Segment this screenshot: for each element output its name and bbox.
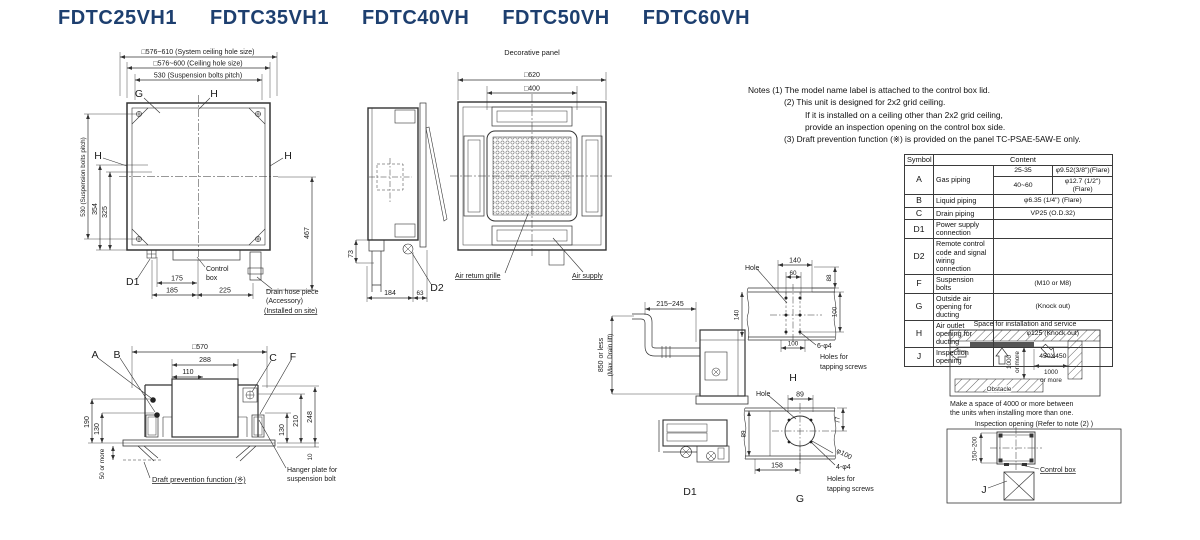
dim-bolt-pitch-vertical: 530 (Suspension bolts pitch) bbox=[80, 137, 87, 216]
dim-158: 158 bbox=[771, 463, 783, 470]
symbol-cell: A bbox=[905, 166, 934, 195]
value-cell: φ9.52(3/8")(Flare) bbox=[1053, 166, 1113, 177]
symbol-h: H bbox=[94, 150, 102, 162]
symbol-cell: H bbox=[905, 321, 934, 348]
dim-140-left: 140 bbox=[734, 309, 741, 320]
dim-100-bottom: 100 bbox=[788, 341, 799, 348]
dim-210: 210 bbox=[293, 415, 300, 427]
drain-hose-label: (Accessory) bbox=[266, 298, 303, 305]
value-cell bbox=[993, 220, 1112, 239]
dim-10: 10 bbox=[307, 453, 314, 461]
draft-prevention-label: Draft prevention function (※) bbox=[152, 475, 246, 484]
screw-label: tapping screws bbox=[827, 486, 874, 493]
dim-bolt-pitch: 530 (Suspension bolts pitch) bbox=[154, 73, 242, 80]
desc-cell: Inspection opening bbox=[934, 348, 994, 367]
value-cell: φ6.35 (1/4") (Flare) bbox=[993, 195, 1112, 208]
hole-pattern-g bbox=[744, 395, 847, 474]
plan-view bbox=[84, 52, 316, 299]
dim-130-left: 130 bbox=[94, 423, 101, 435]
dim-325: 325 bbox=[102, 206, 109, 218]
symbol-cell: F bbox=[905, 274, 934, 293]
dim-ceiling-hole: □576~600 (Ceiling hole size) bbox=[153, 61, 242, 68]
value-cell: 450X450 bbox=[993, 348, 1112, 367]
section-view bbox=[88, 346, 319, 478]
d1-detail-view bbox=[659, 420, 729, 462]
dim-850-or-less: 850 or less bbox=[598, 337, 605, 372]
dim-phi-100: φ100 bbox=[835, 448, 853, 462]
notes-block: Notes (1) The model name label is attach… bbox=[748, 84, 1128, 145]
dim-185: 185 bbox=[166, 288, 178, 295]
range-cell: 25-35 bbox=[993, 166, 1053, 177]
dim-190: 190 bbox=[84, 416, 91, 428]
desc-cell: Remote control code and signal wiring co… bbox=[934, 239, 994, 274]
control-box-label: Control box bbox=[1040, 467, 1076, 474]
dim-1000: 1000 bbox=[1044, 369, 1059, 376]
range-cell: 40~60 bbox=[993, 176, 1053, 194]
dim-50-or-more: 50 or more bbox=[99, 448, 106, 479]
symbol-a: A bbox=[91, 349, 98, 361]
control-box-label: Control bbox=[206, 266, 229, 273]
drain-lift-view bbox=[612, 302, 748, 404]
table-row: A Gas piping 25-35 φ9.52(3/8")(Flare) bbox=[905, 166, 1113, 177]
desc-cell: Gas piping bbox=[934, 166, 994, 195]
drain-hose-label: Drain hose piece bbox=[266, 289, 319, 296]
table-row: C Drain piping VP25 (O.D.32) bbox=[905, 207, 1113, 220]
symbol-d2: D2 bbox=[430, 282, 444, 294]
dim-150-200: 150~200 bbox=[972, 436, 979, 461]
value-cell: φ12.7 (1/2") (Flare) bbox=[1053, 176, 1113, 194]
panel-title: Decorative panel bbox=[504, 48, 560, 57]
dim-77: 77 bbox=[835, 416, 842, 424]
symbol-cell: D1 bbox=[905, 220, 934, 239]
dim-89-left: 89 bbox=[741, 430, 748, 438]
screw-label: Holes for bbox=[827, 476, 856, 483]
dim-73: 73 bbox=[348, 250, 355, 258]
dim-620: □620 bbox=[524, 72, 540, 79]
dim-140-top: 140 bbox=[789, 258, 801, 265]
table-row: H Air outlet opening for ducting φ125 (K… bbox=[905, 321, 1113, 348]
decorative-panel-view bbox=[450, 72, 614, 273]
dim-248: 248 bbox=[307, 411, 314, 423]
desc-cell: Liquid piping bbox=[934, 195, 994, 208]
desc-cell: Outside air opening for ducting bbox=[934, 293, 994, 320]
table-row: D1 Power supply connection bbox=[905, 220, 1113, 239]
symbol-cell: J bbox=[905, 348, 934, 367]
table-row: G Outside air opening for ducting (Knock… bbox=[905, 293, 1113, 320]
side-view-labels: 73 184 63 D2 bbox=[348, 250, 444, 297]
desc-cell: Suspension bolts bbox=[934, 274, 994, 293]
table-header-symbol: Symbol bbox=[905, 155, 934, 166]
desc-cell: Drain piping bbox=[934, 207, 994, 220]
note-line: (2) This unit is designed for 2x2 grid c… bbox=[748, 96, 1128, 108]
dim-60: 60 bbox=[789, 270, 797, 277]
screw-label: tapping screws bbox=[820, 364, 867, 371]
hanger-plate-label: suspension bolt bbox=[287, 476, 336, 483]
dim-175: 175 bbox=[171, 276, 183, 283]
dim-400: □400 bbox=[524, 86, 540, 93]
symbol-d1: D1 bbox=[683, 486, 697, 498]
table-row: B Liquid piping φ6.35 (1/4") (Flare) bbox=[905, 195, 1113, 208]
symbol-d1: D1 bbox=[126, 276, 140, 288]
symbol-h: H bbox=[789, 372, 797, 384]
drawing-sheet: FDTC25VH1 FDTC35VH1 FDTC40VH FDTC50VH FD… bbox=[0, 0, 1200, 540]
control-box-label: box bbox=[206, 275, 218, 282]
obstacle-label: Obstacle bbox=[987, 386, 1012, 393]
dim-100-right: 100 bbox=[832, 306, 839, 317]
symbol-b: B bbox=[113, 349, 120, 361]
symbol-cell: B bbox=[905, 195, 934, 208]
symbol-cell: C bbox=[905, 207, 934, 220]
symbol-g: G bbox=[796, 493, 804, 505]
dim-89-top: 89 bbox=[796, 392, 804, 399]
symbol-j: J bbox=[981, 484, 986, 496]
dim-467: 467 bbox=[304, 227, 311, 239]
dim-63: 63 bbox=[416, 290, 424, 297]
table-row: F Suspension bolts (M10 or M8) bbox=[905, 274, 1113, 293]
symbol-cell: D2 bbox=[905, 239, 934, 274]
air-supply-label: Air supply bbox=[572, 273, 603, 280]
drain-hose-label: (Installed on site) bbox=[264, 308, 317, 315]
value-cell bbox=[993, 239, 1112, 274]
symbol-c: C bbox=[269, 352, 277, 364]
hole-pattern-h-labels: Hole 140 60 88 140 100 100 6-φ4 Holes fo… bbox=[734, 258, 868, 385]
note-line: If it is installed on a ceiling other th… bbox=[748, 109, 1128, 121]
symbol-h: H bbox=[284, 150, 292, 162]
hole-label: Hole bbox=[745, 265, 760, 272]
screw-label: Holes for bbox=[820, 354, 849, 361]
screw-count-label: 6-φ4 bbox=[817, 343, 832, 350]
value-cell: (M10 or M8) bbox=[993, 274, 1112, 293]
table-row: D2 Remote control code and signal wiring… bbox=[905, 239, 1113, 274]
dim-88: 88 bbox=[826, 274, 833, 282]
side-view bbox=[356, 103, 447, 302]
value-cell: (Knock out) bbox=[993, 293, 1112, 320]
dim-system-ceiling-hole: □576~610 (System ceiling hole size) bbox=[142, 49, 255, 56]
plan-view-labels: □576~610 (System ceiling hole size) □576… bbox=[80, 49, 319, 315]
table-row: J Inspection opening 450X450 bbox=[905, 348, 1113, 367]
value-cell: VP25 (O.D.32) bbox=[993, 207, 1112, 220]
symbol-cell: G bbox=[905, 293, 934, 320]
hanger-plate-label: Hanger plate for bbox=[287, 467, 338, 474]
desc-cell: Air outlet opening for ducting bbox=[934, 321, 994, 348]
hole-label: Hole bbox=[756, 391, 771, 398]
drain-lift-labels: 215~245 850 or less (Max. Drain lift) D1 bbox=[598, 301, 697, 498]
value-cell: φ125 (Knock out) bbox=[993, 321, 1112, 348]
max-drain-lift-label: (Max. Drain lift) bbox=[607, 334, 614, 377]
air-return-grille-label: Air return grille bbox=[455, 273, 501, 280]
inspection-title: Inspection opening (Refer to note (2) ) bbox=[975, 421, 1093, 428]
dim-354: 354 bbox=[92, 203, 99, 215]
dim-or-more: or more bbox=[1040, 377, 1062, 384]
dim-570: □570 bbox=[192, 344, 208, 351]
space-caption: Make a space of 4000 or more between bbox=[950, 401, 1073, 408]
dim-130-right: 130 bbox=[279, 424, 286, 436]
dim-110: 110 bbox=[182, 369, 193, 376]
dim-215-245: 215~245 bbox=[656, 301, 684, 308]
symbol-f: F bbox=[290, 351, 296, 363]
symbol-h: H bbox=[210, 88, 218, 100]
note-line: (3) Draft prevention function (※) is pro… bbox=[748, 133, 1128, 145]
symbol-g: G bbox=[135, 88, 143, 100]
screw-count-label: 4-φ4 bbox=[836, 464, 851, 471]
dim-288: 288 bbox=[199, 357, 211, 364]
table-header-content: Content bbox=[934, 155, 1113, 166]
desc-cell: Power supply connection bbox=[934, 220, 994, 239]
dim-225: 225 bbox=[219, 288, 231, 295]
symbol-content-table: Symbol Content A Gas piping 25-35 φ9.52(… bbox=[904, 154, 1113, 367]
dim-184: 184 bbox=[384, 290, 396, 297]
note-line: provide an inspection opening on the con… bbox=[748, 121, 1128, 133]
space-caption: the units when installing more than one. bbox=[950, 410, 1073, 417]
note-line: Notes (1) The model name label is attach… bbox=[748, 84, 1128, 96]
